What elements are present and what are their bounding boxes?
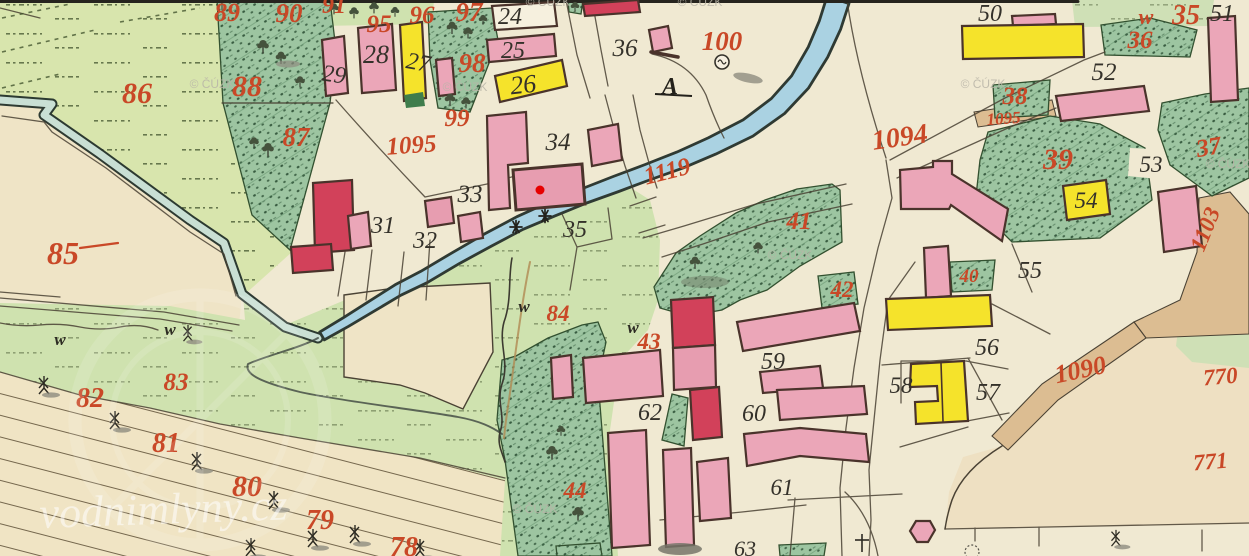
svg-text:28: 28 [363,40,389,69]
svg-text:63: 63 [734,536,756,556]
svg-text:53: 53 [1140,152,1163,177]
svg-text:© ČÚZK: © ČÚZK [678,0,723,9]
svg-text:62: 62 [638,400,662,426]
svg-text:83: 83 [164,369,189,396]
svg-text:29: 29 [320,61,347,90]
svg-text:98: 98 [459,48,487,78]
svg-text:97: 97 [456,0,485,27]
svg-text:78: 78 [390,532,418,556]
svg-text:© ČÚZK: © ČÚZK [190,76,235,91]
svg-text:88: 88 [232,70,262,103]
svg-text:99: 99 [445,105,471,132]
svg-text:44: 44 [563,478,587,503]
svg-text:32: 32 [412,228,437,254]
svg-text:© ČÚZK: © ČÚZK [526,0,571,9]
svg-text:85: 85 [47,235,79,271]
svg-text:52: 52 [1092,59,1117,86]
svg-text:25: 25 [501,38,525,64]
svg-text:40: 40 [959,266,980,287]
svg-text:51: 51 [1210,1,1234,27]
svg-text:24: 24 [498,4,522,30]
svg-text:© ČÚZK: © ČÚZK [768,247,813,262]
svg-text:33: 33 [457,181,483,208]
svg-text:26: 26 [509,69,538,101]
svg-text:35: 35 [1171,0,1200,31]
svg-text:91: 91 [322,0,346,19]
svg-text:1095: 1095 [386,130,438,160]
svg-text:w: w [627,318,639,337]
svg-text:84: 84 [547,301,570,326]
svg-text:96: 96 [410,2,436,29]
svg-text:1095: 1095 [986,108,1022,129]
svg-text:59: 59 [761,349,785,375]
svg-text:w: w [518,297,530,316]
svg-text:34: 34 [545,129,571,156]
svg-text:w: w [1139,4,1154,29]
svg-text:54: 54 [1075,188,1098,213]
svg-text:A: A [660,74,678,100]
svg-text:95: 95 [367,11,392,38]
svg-text:© ČÚZK: © ČÚZK [1206,156,1249,171]
svg-text:41: 41 [786,208,812,235]
svg-text:43: 43 [637,329,661,354]
svg-text:42: 42 [830,277,854,302]
svg-text:58: 58 [890,373,914,398]
svg-text:w: w [54,330,66,349]
svg-text:© ČÚZK: © ČÚZK [443,79,488,94]
svg-text:© ČÚZK: © ČÚZK [513,501,558,516]
svg-text:38: 38 [1002,83,1029,110]
svg-text:100: 100 [702,26,743,56]
svg-text:57: 57 [976,380,1001,406]
svg-text:90: 90 [276,0,304,28]
svg-text:61: 61 [771,475,794,500]
svg-text:771: 771 [1192,448,1229,476]
svg-text:36: 36 [1127,27,1154,54]
svg-text:35: 35 [562,217,587,243]
svg-text:86: 86 [122,77,152,110]
svg-text:79: 79 [306,505,334,536]
svg-text:87: 87 [283,122,312,152]
svg-text:36: 36 [612,35,639,62]
svg-text:770: 770 [1202,363,1239,391]
svg-text:55: 55 [1018,258,1042,284]
svg-text:vodnimlyny.cz: vodnimlyny.cz [39,480,289,538]
svg-text:31: 31 [370,213,395,239]
svg-text:60: 60 [742,401,766,427]
svg-text:39: 39 [1042,143,1073,176]
svg-text:50: 50 [978,1,1002,27]
svg-text:56: 56 [975,335,999,361]
svg-text:89: 89 [214,0,240,27]
svg-text:© ČÚZK: © ČÚZK [961,76,1006,91]
